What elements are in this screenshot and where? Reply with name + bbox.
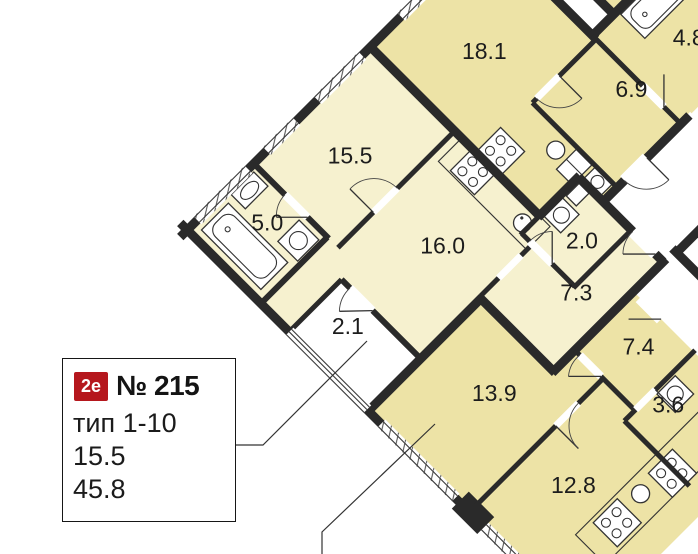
floorplan-page: 15.5 5.0 16.0 2.0 7.3 2.1 18.1 6.9 4.8 1… bbox=[0, 0, 698, 554]
room-label-neighbor-69: 6.9 bbox=[615, 76, 647, 102]
room-label-neighbor-128: 12.8 bbox=[551, 472, 596, 498]
room-label-neighbor-48: 4.8 bbox=[673, 24, 698, 50]
apartment-layout-type: тип 1-10 bbox=[73, 408, 177, 439]
room-label-neighbor-36: 3.6 bbox=[652, 391, 684, 417]
apartment-number: № 215 bbox=[116, 370, 199, 402]
apartment-info-card[interactable]: 2e № 215 тип 1-10 15.5 45.8 bbox=[62, 358, 236, 522]
plan-rotated-group: 15.5 5.0 16.0 2.0 7.3 2.1 18.1 6.9 4.8 1… bbox=[173, 0, 698, 554]
room-label-neighbor-74: 7.4 bbox=[622, 333, 654, 359]
apartment-type-badge: 2e bbox=[74, 372, 108, 401]
room-label-neighbor-181: 18.1 bbox=[462, 38, 507, 64]
apartment-living-area: 15.5 bbox=[73, 441, 126, 472]
apartment-total-area: 45.8 bbox=[73, 474, 126, 505]
room-label-hallway: 7.3 bbox=[560, 280, 592, 306]
room-label-storage: 2.0 bbox=[566, 227, 598, 253]
room-label-living-kitchen: 16.0 bbox=[420, 232, 465, 258]
room-label-neighbor-139: 13.9 bbox=[472, 380, 517, 406]
room-label-bedroom: 15.5 bbox=[328, 143, 373, 169]
room-label-bathroom: 5.0 bbox=[251, 210, 283, 236]
room-label-balcony: 2.1 bbox=[332, 313, 364, 339]
